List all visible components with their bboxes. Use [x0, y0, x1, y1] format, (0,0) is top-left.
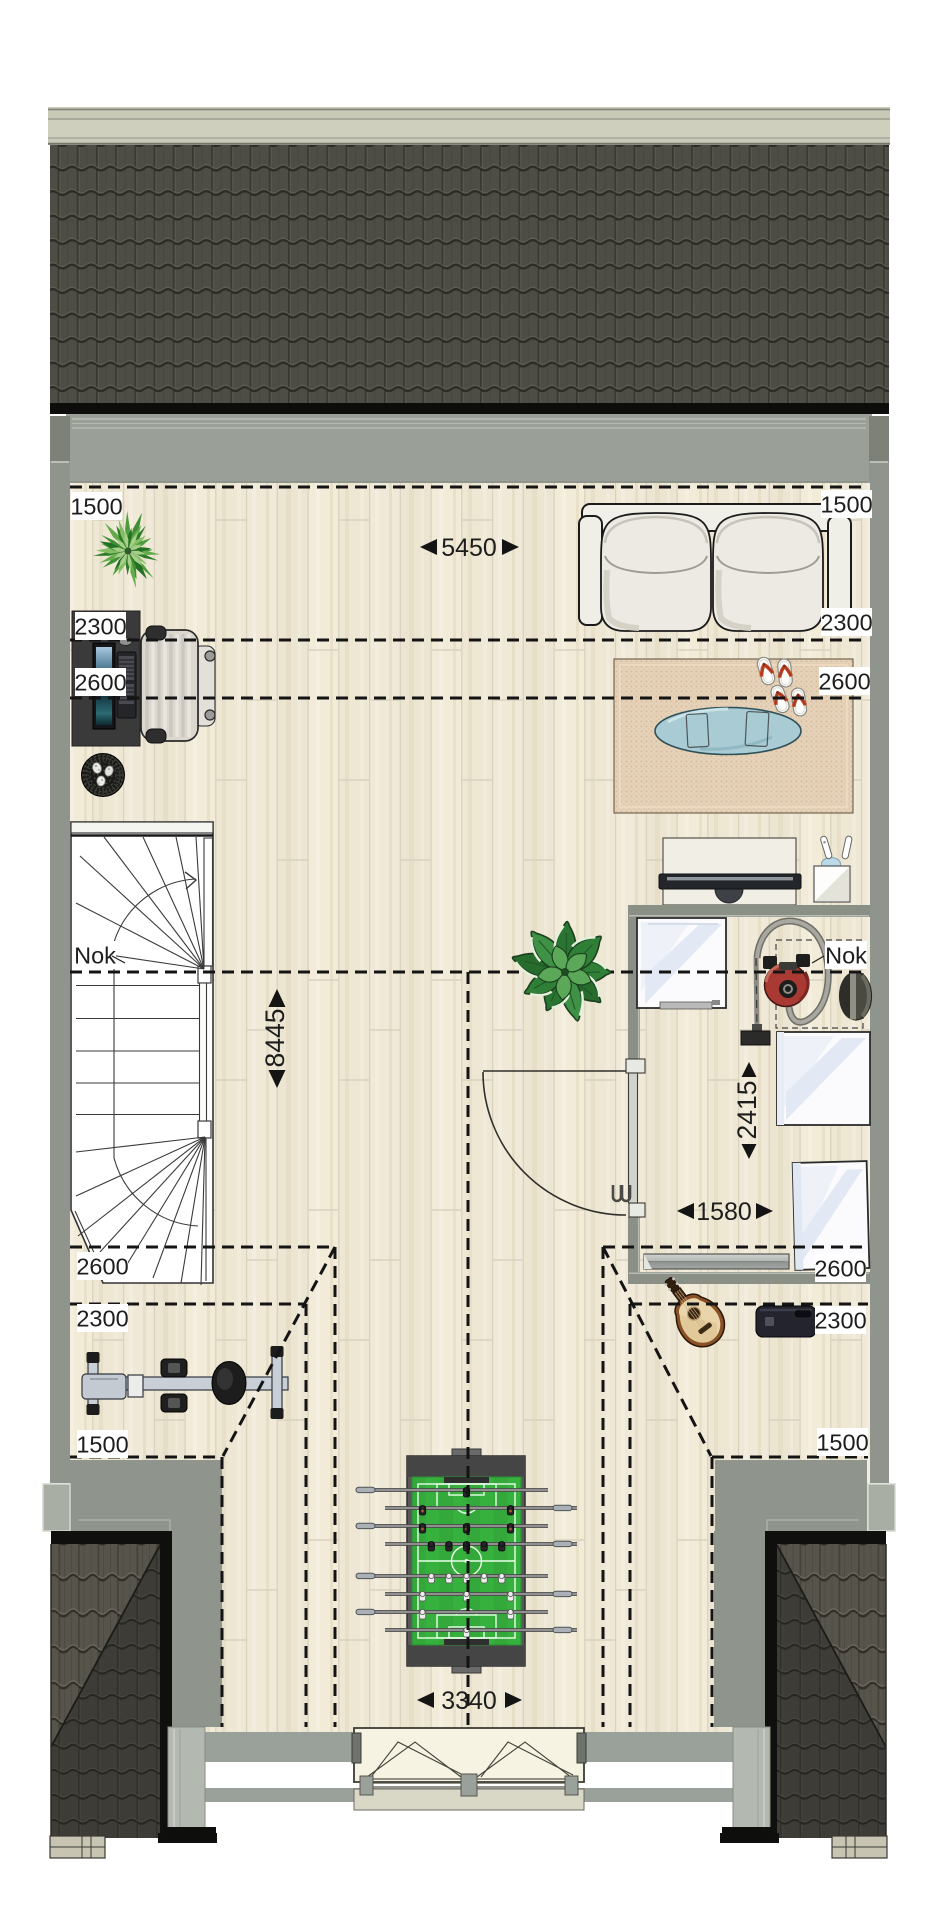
svg-text:Nok: Nok [825, 943, 867, 969]
svg-text:3340: 3340 [441, 1687, 497, 1715]
svg-text:Nok: Nok [74, 943, 116, 969]
svg-text:1580: 1580 [696, 1198, 752, 1226]
svg-text:5450: 5450 [441, 534, 497, 562]
svg-text:2600: 2600 [76, 1254, 128, 1280]
svg-text:2600: 2600 [74, 670, 126, 696]
svg-text:2415: 2415 [732, 1081, 762, 1140]
svg-text:2300: 2300 [814, 1308, 866, 1334]
svg-text:2600: 2600 [818, 669, 870, 695]
svg-text:1500: 1500 [820, 492, 872, 518]
svg-text:2300: 2300 [74, 614, 126, 640]
svg-text:2300: 2300 [76, 1306, 128, 1332]
svg-text:1500: 1500 [70, 494, 122, 520]
svg-text:1500: 1500 [76, 1432, 128, 1458]
svg-text:8445: 8445 [260, 1009, 290, 1068]
svg-text:2300: 2300 [820, 610, 872, 636]
svg-text:2600: 2600 [814, 1256, 866, 1282]
svg-text:1500: 1500 [816, 1430, 868, 1456]
